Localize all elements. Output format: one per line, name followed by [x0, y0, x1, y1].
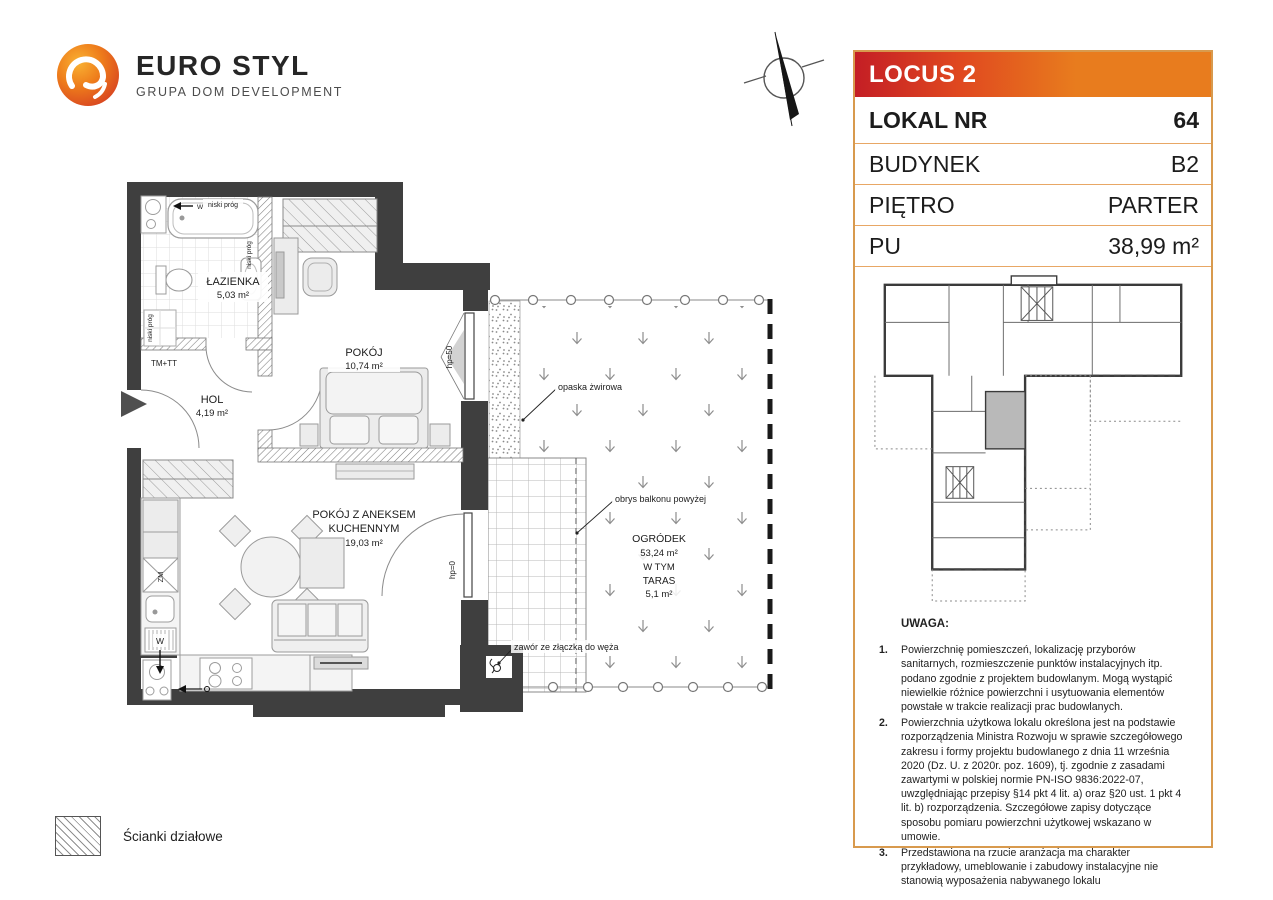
brand-name: EURO STYL	[136, 50, 343, 82]
building-overview	[855, 266, 1211, 605]
gravel-strip	[489, 301, 520, 458]
room-area-hall: 4,19 m²	[196, 408, 228, 419]
brand-logo: EURO STYL GRUPA DOM DEVELOPMENT	[55, 40, 343, 108]
dishwasher-label: ZM	[156, 572, 165, 583]
bathtub-faucet-icon	[180, 216, 185, 221]
pillow	[330, 416, 369, 444]
room-area-bedroom: 10,74 m²	[345, 361, 383, 372]
monitor	[276, 252, 284, 298]
nightstand	[300, 424, 318, 446]
room-area-living: 19,03 m²	[345, 538, 383, 549]
coffee-table	[300, 538, 344, 588]
garden-valve	[486, 656, 512, 678]
apartment-floor-plan: ŁAZIENKA 5,03 m² POKÓJ 10,74 m² HOL 4,19…	[115, 170, 810, 745]
room-label-living: POKÓJ Z ANEKSEM	[312, 508, 415, 521]
fence-top	[490, 296, 770, 305]
room-label-hall: HOL	[201, 394, 224, 406]
pillow	[379, 416, 418, 444]
note-item-3: 3. Przedstawiona na rzucie aranżacja ma …	[879, 846, 1187, 889]
balcony-outline-label: obrys balkonu powyżej	[615, 494, 706, 504]
garden-including: W TYM	[643, 562, 675, 573]
low-threshold-label: niski próg	[208, 202, 238, 209]
unit-number-label: LOKAL NR	[869, 107, 987, 134]
kitchen-sink	[146, 596, 174, 622]
door-height-label: hp=0	[448, 560, 457, 579]
floor-plan-sheet: EURO STYL GRUPA DOM DEVELOPMENT	[0, 0, 1273, 900]
building-value: B2	[1171, 151, 1199, 178]
building-overview-plan	[855, 273, 1211, 603]
building-row: BUDYNEK B2	[855, 143, 1211, 184]
legend-label: Ścianki działowe	[123, 829, 223, 844]
fridge	[143, 500, 178, 532]
low-threshold-label-3: niski próg	[147, 314, 154, 342]
notes-heading: UWAGA:	[901, 617, 1187, 631]
usable-area-label: PU	[869, 233, 901, 260]
tv-bench	[314, 657, 368, 669]
terrace-label: TARAS	[643, 576, 676, 587]
nightstand	[430, 424, 450, 446]
valve-label: zawór ze złączką do węża	[514, 642, 619, 652]
usable-area-row: PU 38,99 m²	[855, 225, 1211, 266]
partition-wall-swatch	[55, 816, 101, 856]
euro-styl-flame-icon	[55, 40, 121, 108]
garden-label: OGRÓDEK	[632, 532, 686, 545]
dining-table	[241, 537, 301, 597]
legend: Ścianki działowe	[55, 816, 223, 856]
sofa	[272, 600, 368, 652]
brand-tagline: GRUPA DOM DEVELOPMENT	[136, 85, 343, 99]
note-item-1: 1. Powierzchnię pomieszczeń, lokalizację…	[879, 643, 1187, 714]
hob	[200, 658, 252, 689]
usable-area-value: 38,99 m²	[1108, 233, 1199, 260]
tm-tt-label: TM+TT	[151, 359, 177, 368]
drain-label: W	[197, 204, 204, 211]
floor-value: PARTER	[1108, 192, 1199, 219]
unit-number-row: LOKAL NR 64	[855, 97, 1211, 143]
floor-row: PIĘTRO PARTER	[855, 184, 1211, 225]
vent-label: W	[156, 636, 164, 646]
unit-number-value: 64	[1173, 107, 1199, 134]
toilet	[166, 269, 192, 291]
building-label: BUDYNEK	[869, 151, 980, 178]
unit-info-panel: LOCUS 2 LOKAL NR 64 BUDYNEK B2 PIĘTRO PA…	[853, 50, 1213, 848]
project-title: LOCUS 2	[855, 52, 1211, 97]
room-label-living-2: KUCHENNYM	[329, 523, 400, 535]
room-label-bedroom: POKÓJ	[345, 346, 382, 359]
room-label-bathroom: ŁAZIENKA	[206, 276, 260, 288]
garden-area: 53,24 m²	[640, 548, 678, 559]
north-arrow-icon	[742, 26, 827, 136]
toilet-tank	[156, 266, 166, 294]
highlighted-unit	[986, 392, 1026, 449]
note-item-2: 2. Powierzchnia użytkowa lokalu określon…	[879, 716, 1187, 844]
low-threshold-label-2: niski próg	[246, 241, 253, 269]
project-name: LOCUS 2	[869, 61, 977, 89]
floor-label: PIĘTRO	[869, 192, 955, 219]
window-height-label: hp=50	[445, 345, 454, 368]
room-area-bathroom: 5,03 m²	[217, 290, 249, 301]
gravel-strip-label: opaska żwirowa	[558, 382, 622, 392]
terrace-area: 5,1 m²	[646, 589, 673, 600]
notes-section: UWAGA: 1. Powierzchnię pomieszczeń, loka…	[855, 605, 1211, 891]
